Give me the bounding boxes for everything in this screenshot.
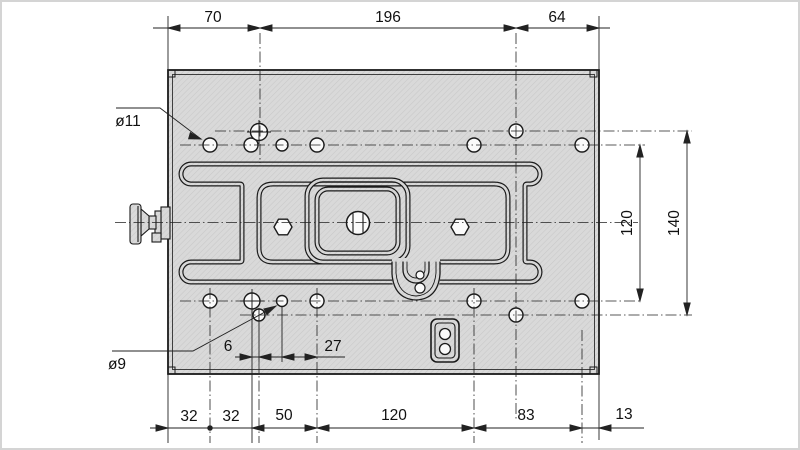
dim-label-64: 64 <box>548 9 566 26</box>
small-pin-hole-upper <box>416 271 424 279</box>
hole-callout-o9: ø9 <box>108 356 126 373</box>
side-knob-plunger <box>130 204 170 244</box>
knob-disc <box>130 204 141 244</box>
dim-label-6: 6 <box>224 338 233 355</box>
dim-label-32a: 32 <box>180 408 197 425</box>
dim-label-83: 83 <box>517 407 534 424</box>
cup-erase-zone <box>392 258 440 302</box>
dim-label-140-right: 140 <box>666 210 683 236</box>
dim-label-120-right: 120 <box>619 210 636 236</box>
dim-label-120-bottom: 120 <box>381 407 407 424</box>
bracket-screw-hole-top <box>440 329 451 340</box>
hole-callout-o11: ø11 <box>115 113 141 130</box>
small-pin-hole-lower <box>415 283 425 293</box>
technical-drawing-svg: 70 196 64 32 32 50 120 83 13 120 140 6 2… <box>0 0 800 450</box>
dim-label-32b: 32 <box>222 408 239 425</box>
plate-outline <box>168 70 599 374</box>
knob-mount-block <box>161 207 170 239</box>
center-bolt-hole <box>347 212 370 235</box>
drawing-canvas: 70 196 64 32 32 50 120 83 13 120 140 6 2… <box>0 0 800 450</box>
dim-label-27: 27 <box>324 338 341 355</box>
hex-hole-right <box>451 219 469 235</box>
bracket-screw-hole-bottom <box>440 344 451 355</box>
dim-label-13: 13 <box>615 406 632 423</box>
knob-tab <box>152 233 161 242</box>
keeper-bracket <box>431 319 459 362</box>
hex-hole-left <box>274 219 292 235</box>
plate-body <box>168 70 599 374</box>
dim-label-196: 196 <box>375 9 401 26</box>
dim-label-50: 50 <box>275 407 293 424</box>
dim-label-70: 70 <box>204 9 222 26</box>
